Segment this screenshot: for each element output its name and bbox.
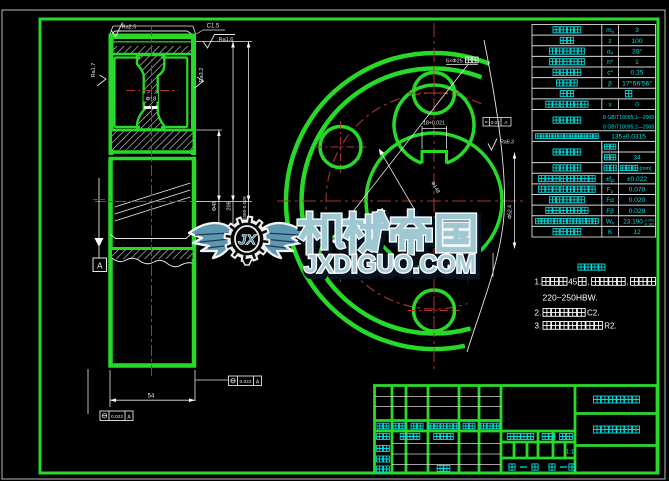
svg-text:JXDIGUO.COM: JXDIGUO.COM (304, 251, 476, 279)
svg-text:JX: JX (238, 232, 257, 249)
